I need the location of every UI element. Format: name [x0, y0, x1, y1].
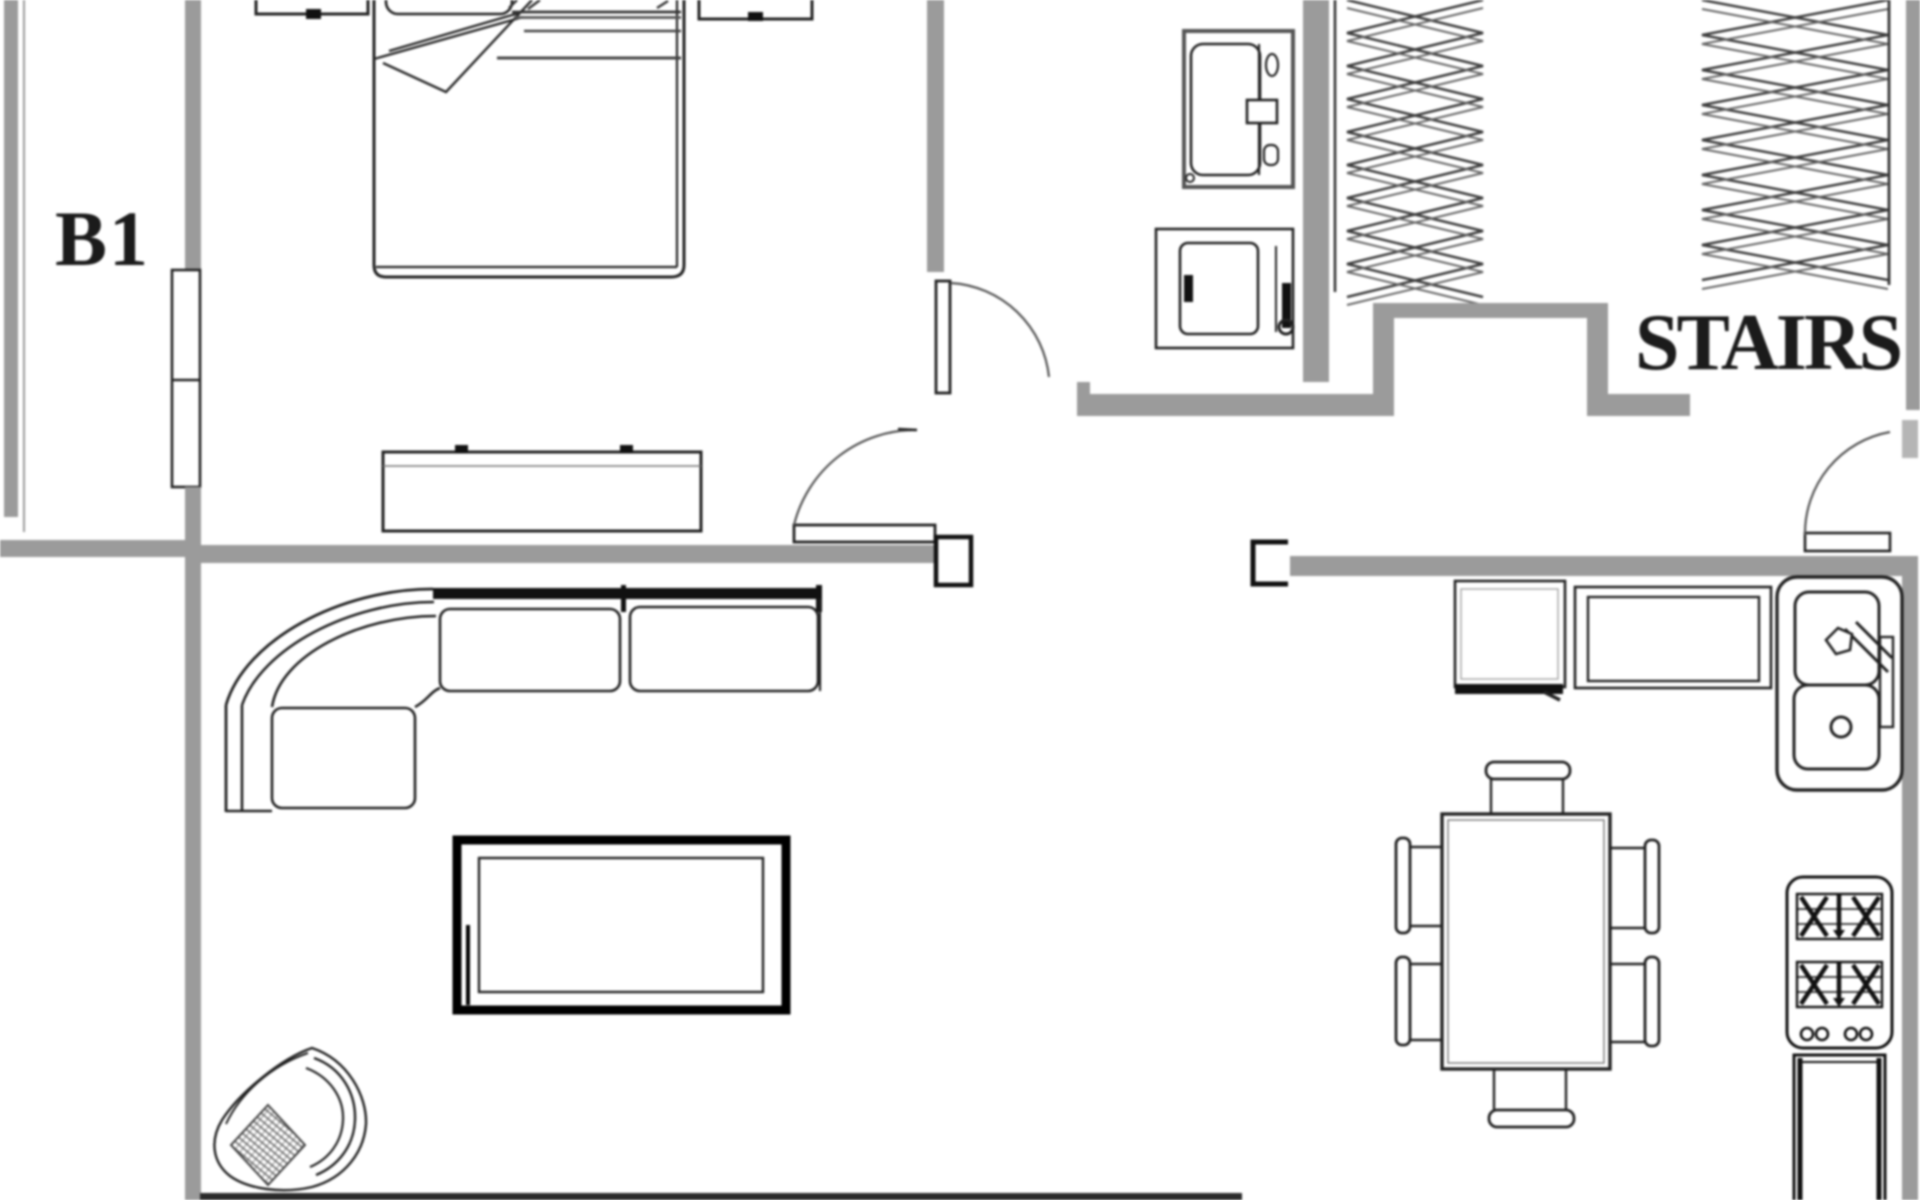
svg-text:STAIRS: STAIRS [1635, 299, 1901, 387]
svg-text:B1: B1 [55, 195, 150, 282]
